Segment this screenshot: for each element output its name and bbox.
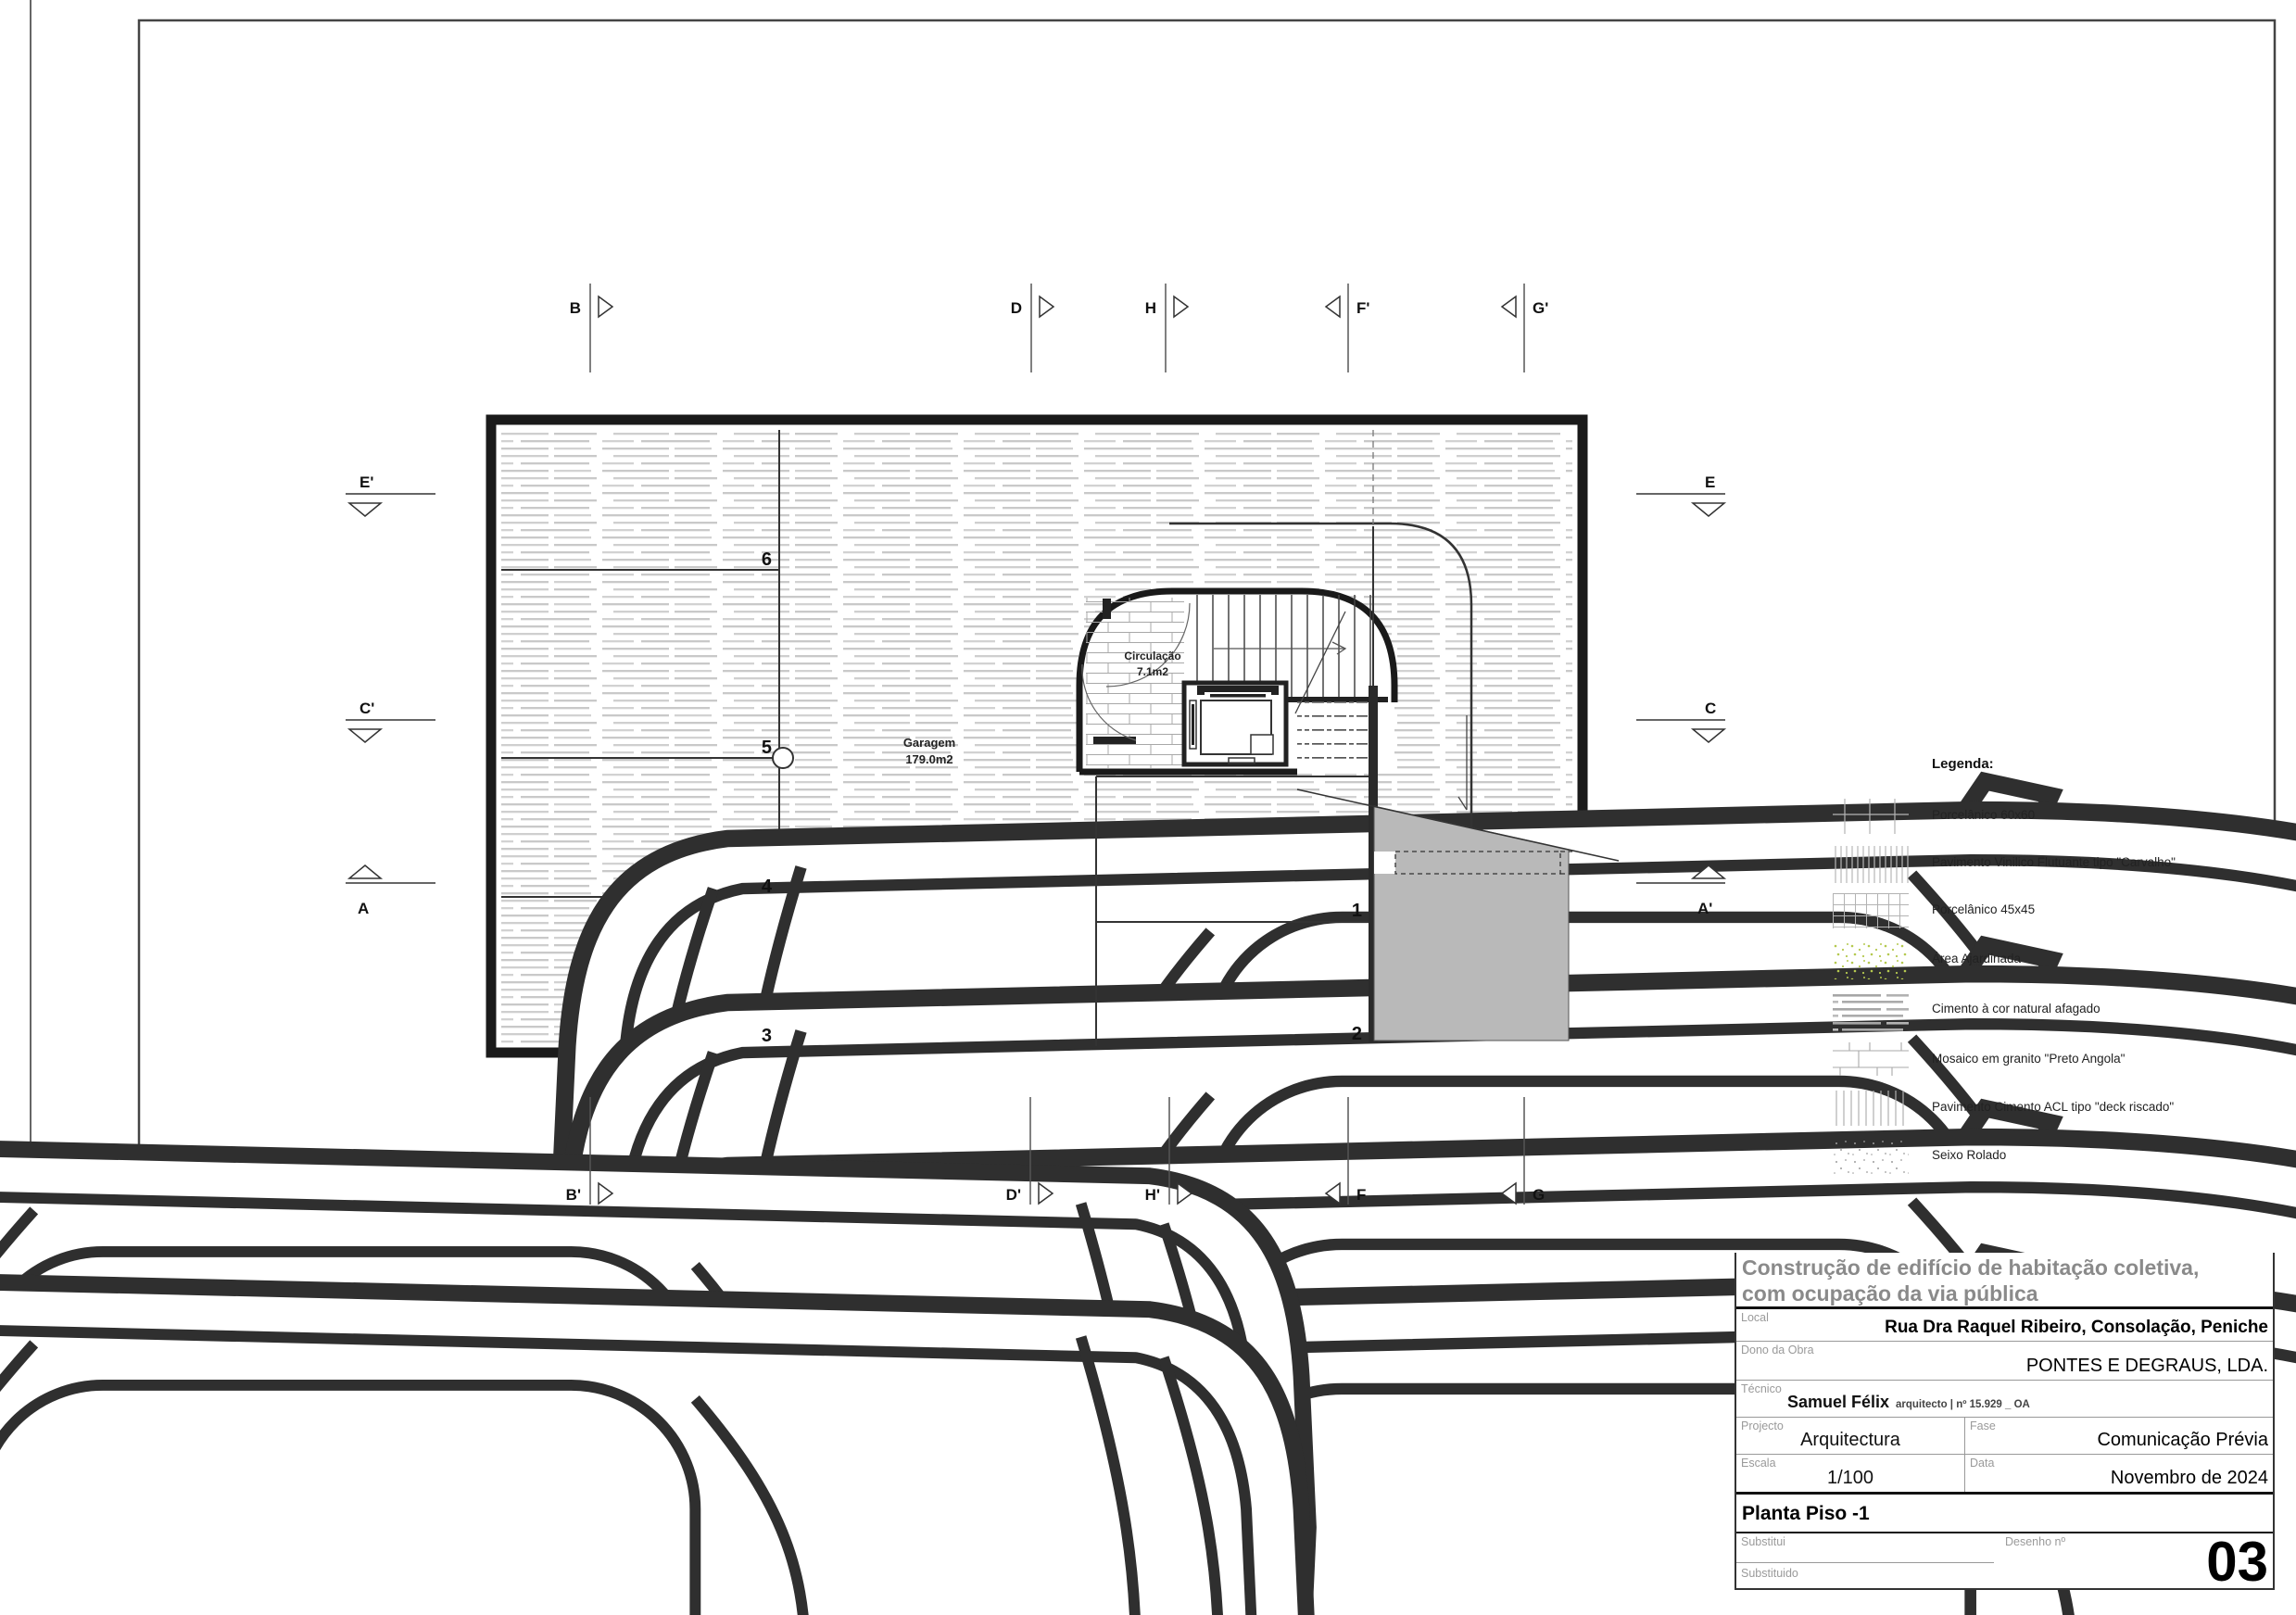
section-marker-C-prime: C'	[346, 700, 435, 742]
drawing-number: 03	[2206, 1530, 2268, 1594]
local-value: Rua Dra Raquel Ribeiro, Consolação, Peni…	[1885, 1318, 2268, 1338]
projecto-value: Arquitectura	[1736, 1430, 1964, 1451]
section-marker-H: H	[1145, 284, 1188, 372]
svg-text:B': B'	[566, 1186, 581, 1204]
legend-item-deck: Pavimento Cimento ACL tipo "deck riscado…	[1833, 1089, 2268, 1129]
svg-text:F: F	[1356, 1186, 1366, 1204]
svg-text:A: A	[358, 900, 369, 917]
drawing-sheet: 6 5 4 3 Garagem 179.0m2	[0, 0, 2296, 1615]
circulation-label: Circulação	[1124, 650, 1180, 662]
data-value: Novembro de 2024	[2111, 1468, 2268, 1489]
row-escala-data: Escala 1/100 Data Novembro de 2024	[1736, 1455, 2273, 1495]
escala-value: 1/100	[1736, 1468, 1964, 1489]
svg-text:B: B	[570, 299, 581, 317]
svg-text:D': D'	[1006, 1186, 1021, 1204]
legend-item-seixo: Seixo Rolado	[1833, 1137, 2268, 1178]
legend-swatch-porcelanico-60x60	[1833, 799, 1909, 834]
row-tecnico: Técnico Samuel Félix arquitecto | nº 15.…	[1736, 1381, 2273, 1418]
garage-area: 179.0m2	[905, 752, 952, 766]
section-marker-A: A	[346, 865, 435, 917]
column	[773, 748, 793, 768]
svg-text:H: H	[1145, 299, 1156, 317]
spot-number-4: 4	[762, 877, 773, 897]
circulation-area: 7.1m2	[1137, 665, 1168, 678]
legend-swatch-porcelanico-45x45	[1833, 893, 1909, 928]
row-dono: Dono da Obra PONTES E DEGRAUS, LDA.	[1736, 1342, 2273, 1381]
car-spot-2	[0, 1255, 1308, 1615]
legend-item-porcelanico-60x60: Porcelânico 60x60	[1833, 797, 2268, 838]
tecnico-detail: arquitecto | nº 15.929 _ OA	[1896, 1399, 2030, 1410]
svg-text:A': A'	[1697, 900, 1712, 917]
svg-text:D: D	[1011, 299, 1022, 317]
section-marker-C: C	[1636, 700, 1725, 742]
legend-item-vinilico: Pavimento Vinilico Flutuante tipo "Carva…	[1833, 844, 2268, 885]
svg-text:E: E	[1705, 473, 1715, 491]
spot-number-2: 2	[1352, 1024, 1362, 1044]
svg-text:H': H'	[1145, 1186, 1160, 1204]
svg-text:E': E'	[360, 473, 373, 491]
legend-swatch-cimento	[1833, 992, 1909, 1031]
svg-text:G': G'	[1533, 299, 1548, 317]
svg-text:G: G	[1533, 1186, 1545, 1204]
legend-item-porcelanico-45x45: Porcelânico 45x45	[1833, 891, 2268, 932]
title-block: Construção de edifício de habitação cole…	[1735, 1253, 2275, 1590]
spot-number-5: 5	[762, 738, 772, 758]
legend-swatch-deck	[1833, 1091, 1909, 1126]
elevator	[1184, 683, 1286, 764]
garage-label: Garagem	[903, 736, 955, 750]
spot-number-3: 3	[762, 1026, 772, 1046]
svg-text:F': F'	[1356, 299, 1369, 317]
drawing-title: Planta Piso -1	[1742, 1503, 1870, 1525]
legend-swatch-ajardinada	[1833, 942, 1909, 979]
section-marker-D: D	[1011, 284, 1053, 372]
svg-text:C: C	[1705, 700, 1716, 717]
fase-value: Comunicação Prévia	[2097, 1430, 2268, 1451]
tecnico-name: Samuel Félix	[1787, 1393, 1889, 1412]
spot-number-6: 6	[762, 549, 772, 570]
spot-number-1: 1	[1352, 901, 1362, 921]
svg-text:C': C'	[360, 700, 374, 717]
section-marker-B: B	[570, 284, 612, 372]
legend-item-cimento: Cimento à cor natural afagado	[1833, 990, 2268, 1031]
legend-item-mosaico: Mosaico em granito "Preto Angola"	[1833, 1041, 2268, 1081]
row-projecto-fase: Projecto Arquitectura Fase Comunicação P…	[1736, 1418, 2273, 1455]
legend-title: Legenda:	[1932, 756, 1994, 772]
legend-item-ajardinada: Área Ajardinada	[1833, 940, 2268, 981]
section-marker-F-prime: F'	[1326, 284, 1369, 372]
legend-swatch-vinilico	[1833, 846, 1909, 883]
legend-swatch-seixo	[1833, 1139, 1909, 1174]
row-drawing-title: Planta Piso -1	[1736, 1495, 2273, 1533]
row-substitui: Substitui Substituido Desenho nº 03	[1736, 1533, 2273, 1590]
legend-swatch-mosaico	[1833, 1042, 1909, 1076]
section-marker-E-prime: E'	[346, 473, 435, 516]
row-local: Local Rua Dra Raquel Ribeiro, Consolação…	[1736, 1309, 2273, 1342]
section-marker-E: E	[1636, 473, 1725, 516]
section-marker-G-prime: G'	[1502, 284, 1548, 372]
dono-value: PONTES E DEGRAUS, LDA.	[2026, 1356, 2268, 1377]
ramp-hatch-under-stairs	[1297, 697, 1368, 769]
